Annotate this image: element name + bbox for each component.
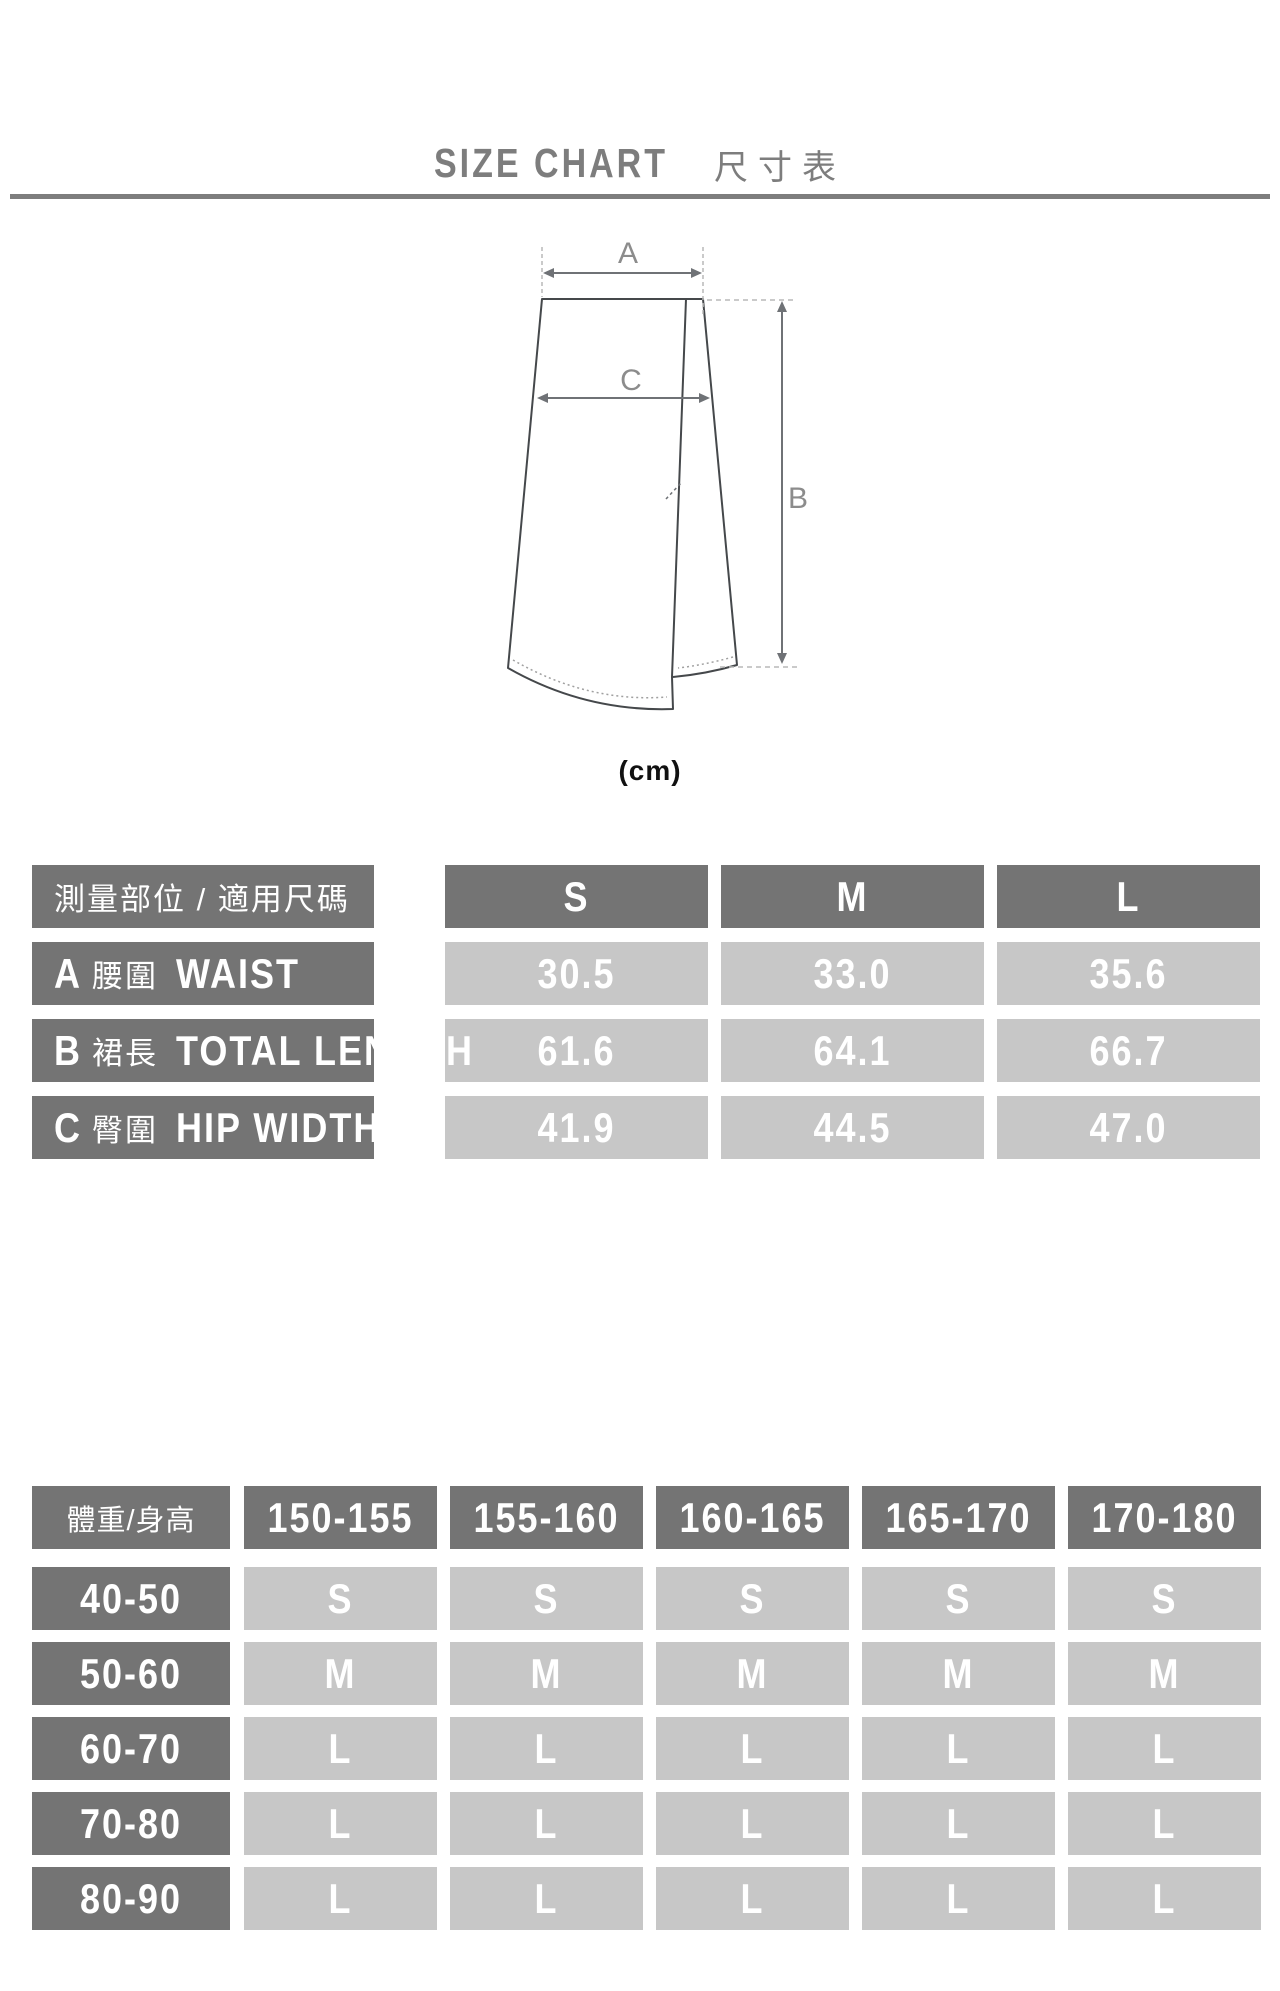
measurement-row-hip-width: C 臀圍 HIP WIDTH 41.9 44.5 47.0 (32, 1096, 1260, 1159)
measure-label-waist: A 腰圍 WAIST (32, 942, 374, 1005)
measurement-table-header-row: 測量部位 / 適用尺碼 S M L (32, 865, 1260, 928)
value-waist-m: 33.0 (721, 942, 984, 1005)
fit-header-label-cell: 體重/身高 (32, 1486, 230, 1549)
measurement-table: 測量部位 / 適用尺碼 S M L A 腰圍 WAIST 30.5 33.0 3… (32, 865, 1260, 1173)
fit-cell: L (450, 1717, 643, 1780)
fit-cell: L (244, 1717, 437, 1780)
value-length-l: 66.7 (997, 1019, 1260, 1082)
fit-cell: S (450, 1567, 643, 1630)
fit-cell: L (244, 1792, 437, 1855)
fit-cell: S (244, 1567, 437, 1630)
fit-cell: L (450, 1792, 643, 1855)
weight-label-80-90: 80-90 (32, 1867, 230, 1930)
fit-row-80-90: 80-90 L L L L L (32, 1867, 1261, 1930)
measurement-row-total-length: B 裙長 TOTAL LENGTH 61.6 64.1 66.7 (32, 1019, 1260, 1082)
weight-label-70-80: 70-80 (32, 1792, 230, 1855)
unit-label-cm: (cm) (585, 755, 715, 787)
value-waist-s: 30.5 (445, 942, 708, 1005)
arrow-b (777, 301, 787, 664)
fit-cell: L (862, 1717, 1055, 1780)
fit-row-70-80: 70-80 L L L L L (32, 1792, 1261, 1855)
fit-cell: M (862, 1642, 1055, 1705)
height-header-170-180: 170-180 (1068, 1486, 1261, 1549)
value-length-s: 61.6 (445, 1019, 708, 1082)
weight-label-60-70: 60-70 (32, 1717, 230, 1780)
fit-cell: L (656, 1717, 849, 1780)
fit-cell: M (1068, 1642, 1261, 1705)
fit-cell: L (656, 1792, 849, 1855)
skirt-measurement-diagram: A C B (0, 0, 1280, 830)
weight-label-40-50: 40-50 (32, 1567, 230, 1630)
measure-label-total-length: B 裙長 TOTAL LENGTH (32, 1019, 374, 1082)
fit-row-60-70: 60-70 L L L L L (32, 1717, 1261, 1780)
diagram-label-c: C (620, 364, 642, 397)
value-hip-m: 44.5 (721, 1096, 984, 1159)
fit-cell: L (1068, 1867, 1261, 1930)
skirt-front-panel (508, 299, 686, 709)
weight-label-50-60: 50-60 (32, 1642, 230, 1705)
measure-header-label: 測量部位 / 適用尺碼 (54, 874, 350, 919)
diagram-label-b: B (788, 482, 808, 515)
fit-cell: M (450, 1642, 643, 1705)
fit-cell: S (656, 1567, 849, 1630)
fit-row-40-50: 40-50 S S S S S (32, 1567, 1261, 1630)
fit-cell: L (656, 1867, 849, 1930)
measurement-row-waist: A 腰圍 WAIST 30.5 33.0 35.6 (32, 942, 1260, 1005)
fit-cell: L (1068, 1792, 1261, 1855)
fit-row-50-60: 50-60 M M M M M (32, 1642, 1261, 1705)
fit-cell: M (244, 1642, 437, 1705)
fit-cell: L (450, 1867, 643, 1930)
height-header-150-155: 150-155 (244, 1486, 437, 1549)
fit-cell: S (1068, 1567, 1261, 1630)
fit-cell: S (862, 1567, 1055, 1630)
measure-header-label-cell: 測量部位 / 適用尺碼 (32, 865, 374, 928)
height-header-155-160: 155-160 (450, 1486, 643, 1549)
height-header-165-170: 165-170 (862, 1486, 1055, 1549)
value-waist-l: 35.6 (997, 942, 1260, 1005)
fit-cell: L (862, 1867, 1055, 1930)
size-header-l: L (997, 865, 1260, 928)
fit-cell: M (656, 1642, 849, 1705)
fit-cell: L (1068, 1717, 1261, 1780)
fit-cell: L (244, 1867, 437, 1930)
height-header-160-165: 160-165 (656, 1486, 849, 1549)
size-header-s: S (445, 865, 708, 928)
diagram-label-a: A (618, 237, 638, 270)
value-hip-l: 47.0 (997, 1096, 1260, 1159)
fit-cell: L (862, 1792, 1055, 1855)
size-header-m: M (721, 865, 984, 928)
measure-label-hip-width: C 臀圍 HIP WIDTH (32, 1096, 374, 1159)
fit-header-label: 體重/身高 (66, 1497, 195, 1539)
fit-table-header-row: 體重/身高 150-155 155-160 160-165 165-170 17… (32, 1486, 1261, 1549)
fit-table: 體重/身高 150-155 155-160 160-165 165-170 17… (32, 1486, 1261, 1942)
value-length-m: 64.1 (721, 1019, 984, 1082)
value-hip-s: 41.9 (445, 1096, 708, 1159)
